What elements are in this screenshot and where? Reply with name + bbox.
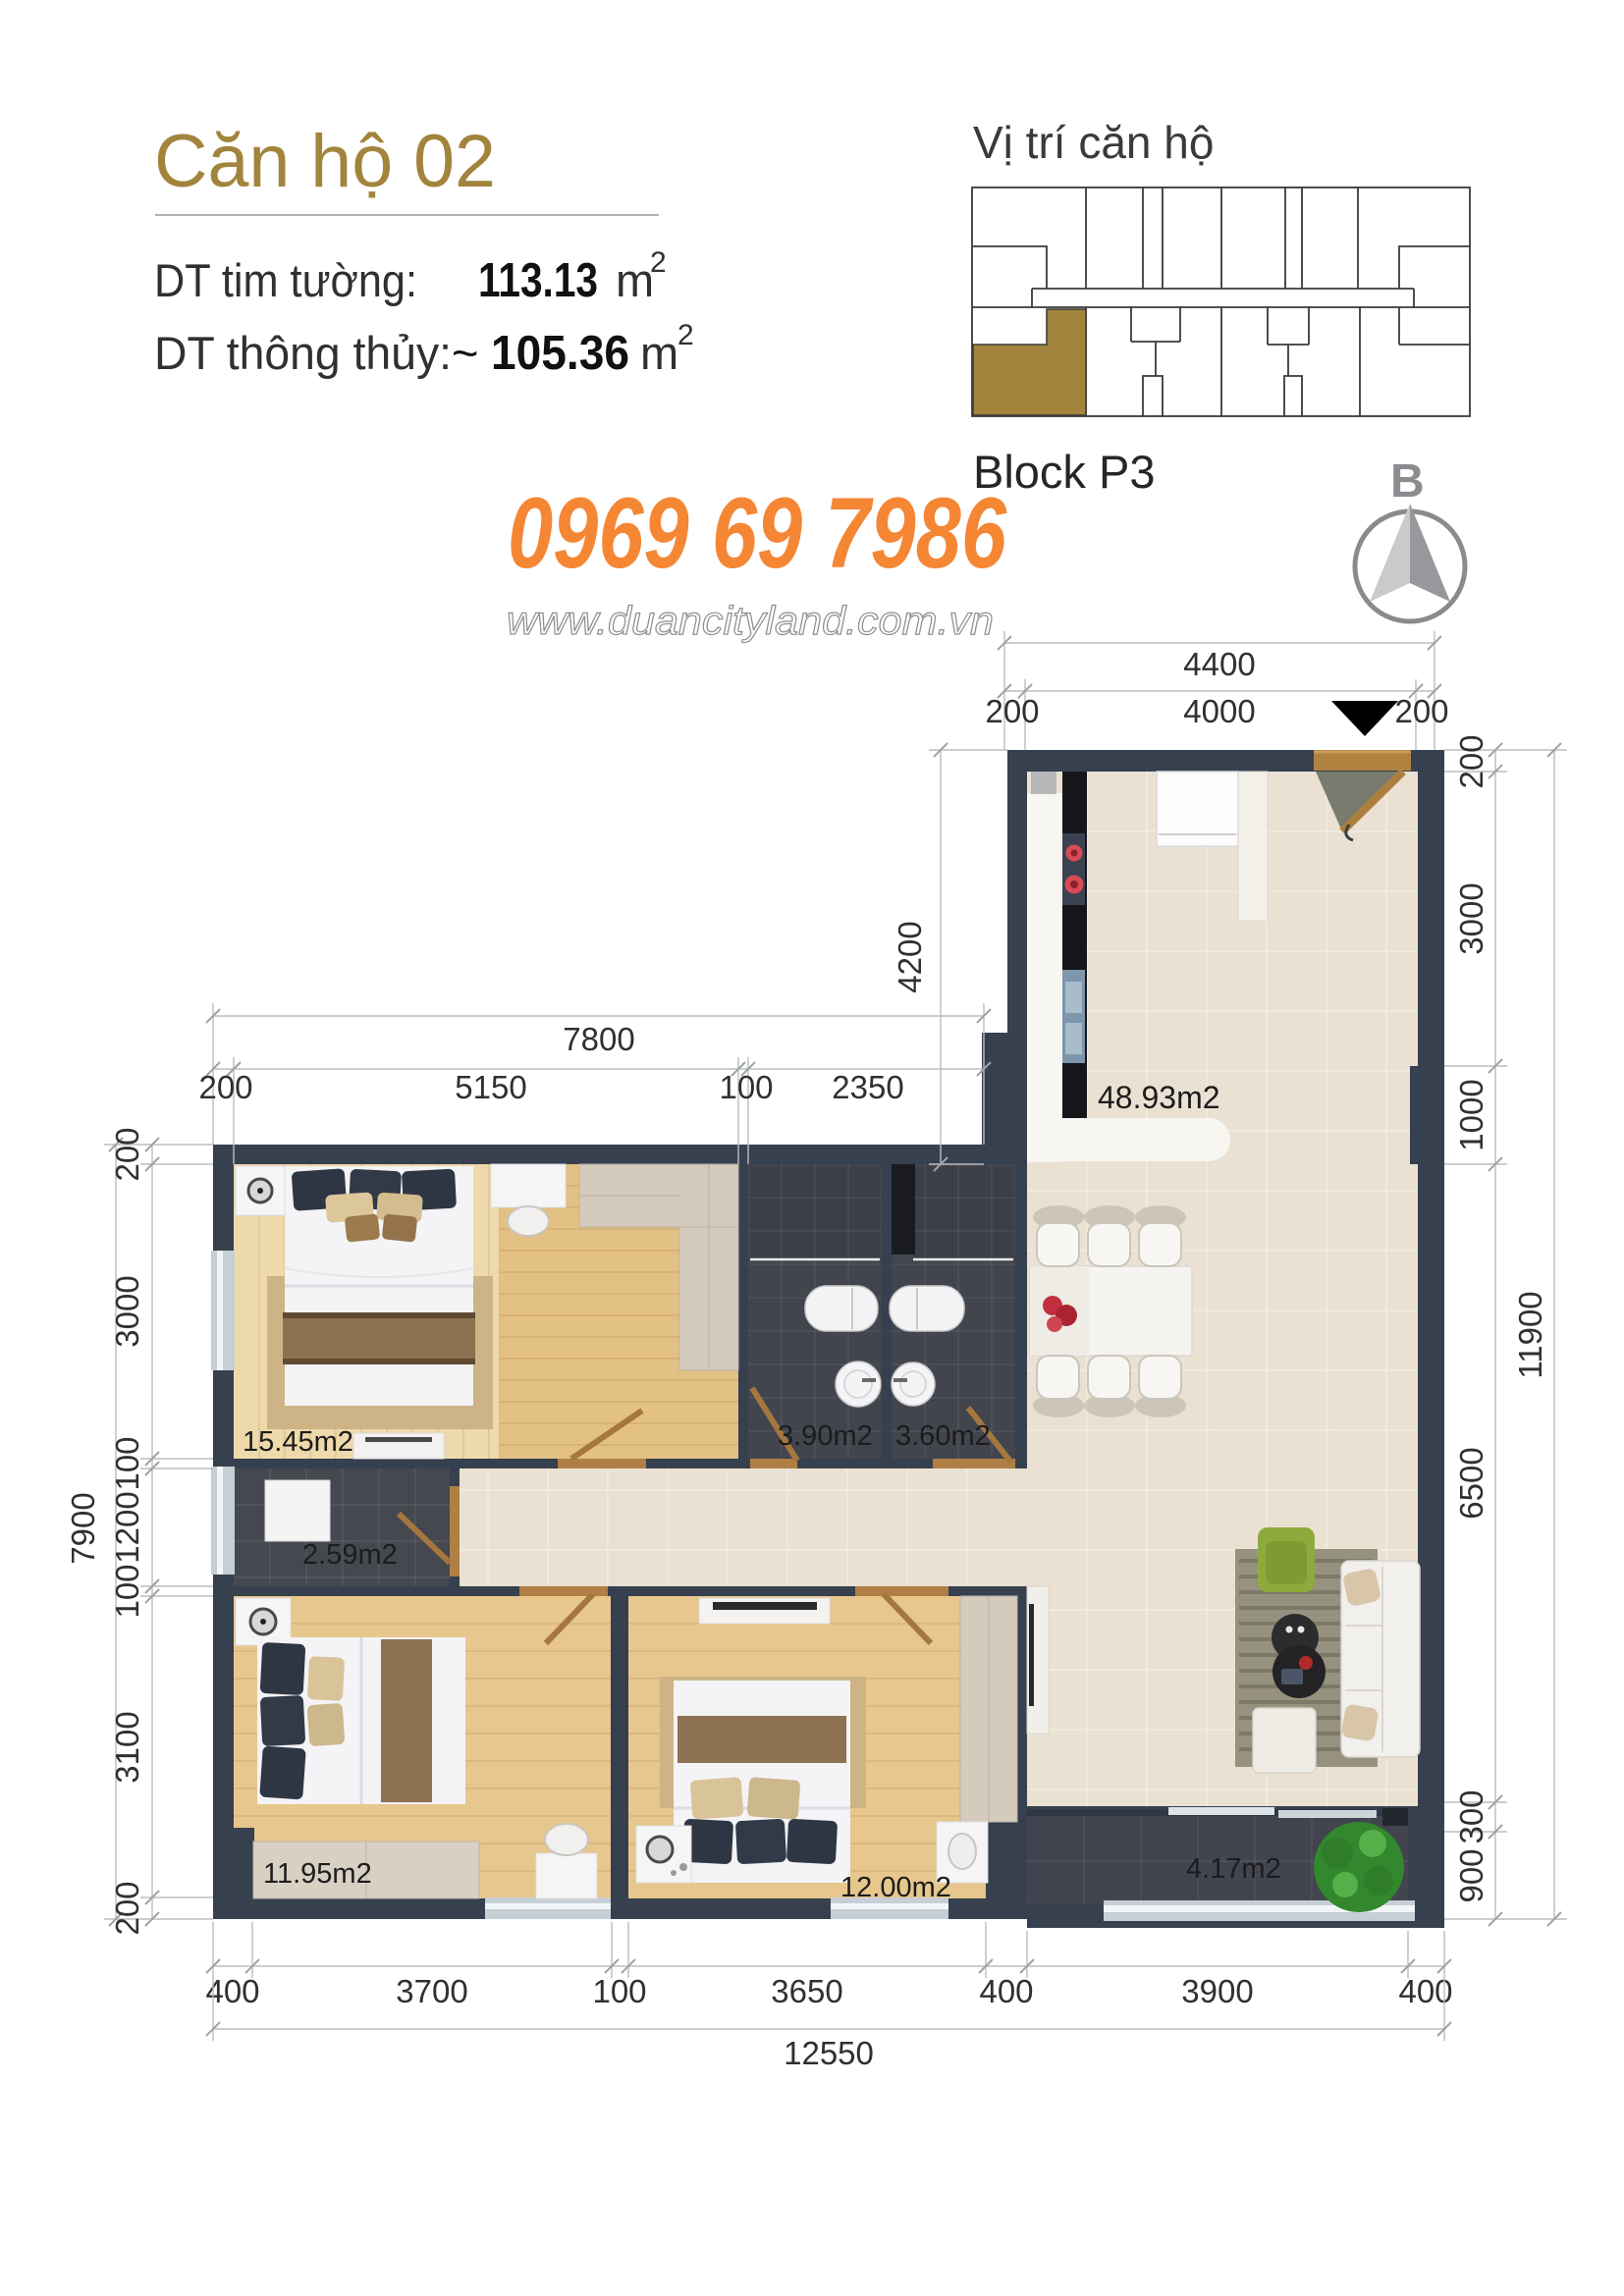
svg-text:5150: 5150 xyxy=(455,1069,526,1105)
svg-text:Căn hộ 02: Căn hộ 02 xyxy=(154,120,496,203)
svg-text:12.00m2: 12.00m2 xyxy=(840,1872,951,1903)
svg-text:m: m xyxy=(640,327,678,379)
svg-text:2350: 2350 xyxy=(832,1069,903,1105)
svg-text:3000: 3000 xyxy=(1453,882,1489,954)
svg-text:3000: 3000 xyxy=(109,1275,145,1347)
svg-text:www.duancityland.com.vn: www.duancityland.com.vn xyxy=(507,598,994,643)
svg-text:1200: 1200 xyxy=(109,1491,145,1563)
svg-text:12550: 12550 xyxy=(784,2035,874,2071)
svg-text:4400: 4400 xyxy=(1183,646,1255,682)
svg-text:3650: 3650 xyxy=(771,1973,842,2009)
svg-text:2.59m2: 2.59m2 xyxy=(302,1539,398,1571)
svg-text:6500: 6500 xyxy=(1453,1447,1489,1519)
svg-text:200: 200 xyxy=(109,1881,145,1935)
svg-text:3.90m2: 3.90m2 xyxy=(778,1420,873,1452)
svg-text:B: B xyxy=(1390,455,1425,507)
svg-text:m: m xyxy=(616,254,654,306)
svg-text:DT thông thủy:: DT thông thủy: xyxy=(154,327,452,379)
svg-text:3700: 3700 xyxy=(396,1973,467,2009)
svg-text:400: 400 xyxy=(205,1973,259,2009)
svg-text:900: 900 xyxy=(1453,1848,1489,1902)
svg-text:300: 300 xyxy=(1453,1789,1489,1843)
svg-text:3100: 3100 xyxy=(109,1711,145,1783)
svg-text:105.36: 105.36 xyxy=(491,327,629,380)
svg-text:100: 100 xyxy=(109,1436,145,1490)
svg-text:2: 2 xyxy=(650,246,667,279)
svg-text:400: 400 xyxy=(979,1973,1033,2009)
svg-text:0969 69 7986: 0969 69 7986 xyxy=(508,477,1007,589)
svg-text:15.45m2: 15.45m2 xyxy=(243,1426,353,1458)
svg-text:113.13: 113.13 xyxy=(478,254,598,307)
svg-text:200: 200 xyxy=(109,1127,145,1181)
svg-text:200: 200 xyxy=(1453,734,1489,788)
svg-text:11.95m2: 11.95m2 xyxy=(263,1858,372,1890)
svg-text:2: 2 xyxy=(677,319,694,351)
svg-text:200: 200 xyxy=(985,693,1039,729)
svg-text:~: ~ xyxy=(452,327,478,379)
svg-text:Block P3: Block P3 xyxy=(973,446,1155,498)
svg-text:1000: 1000 xyxy=(1453,1079,1489,1150)
svg-text:4000: 4000 xyxy=(1183,693,1255,729)
svg-text:100: 100 xyxy=(109,1564,145,1618)
svg-text:4200: 4200 xyxy=(892,921,928,992)
svg-text:48.93m2: 48.93m2 xyxy=(1098,1080,1220,1115)
svg-text:7900: 7900 xyxy=(65,1492,101,1564)
svg-text:100: 100 xyxy=(592,1973,646,2009)
svg-text:200: 200 xyxy=(198,1069,252,1105)
svg-text:3900: 3900 xyxy=(1181,1973,1253,2009)
svg-text:DT tim tường:: DT tim tường: xyxy=(154,254,417,306)
svg-text:3.60m2: 3.60m2 xyxy=(895,1420,991,1452)
svg-text:4.17m2: 4.17m2 xyxy=(1186,1853,1281,1885)
svg-text:Vị trí căn hộ: Vị trí căn hộ xyxy=(973,117,1214,168)
svg-text:200: 200 xyxy=(1394,693,1448,729)
svg-text:11900: 11900 xyxy=(1512,1291,1548,1378)
svg-text:7800: 7800 xyxy=(563,1021,634,1057)
svg-text:100: 100 xyxy=(719,1069,773,1105)
